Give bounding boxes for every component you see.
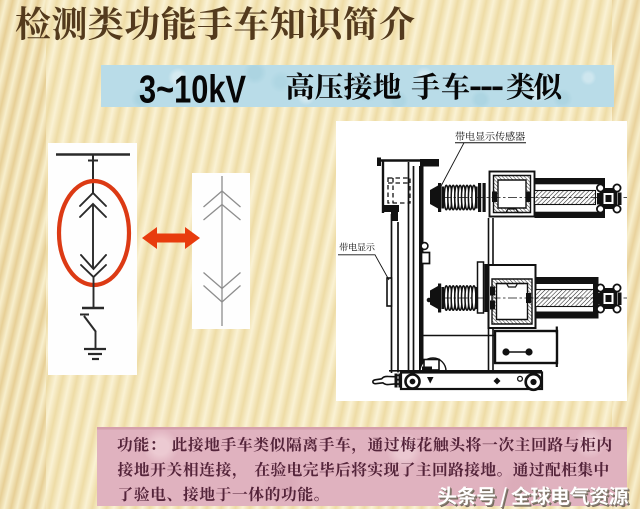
svg-text:3~10kV: 3~10kV: [139, 68, 247, 107]
